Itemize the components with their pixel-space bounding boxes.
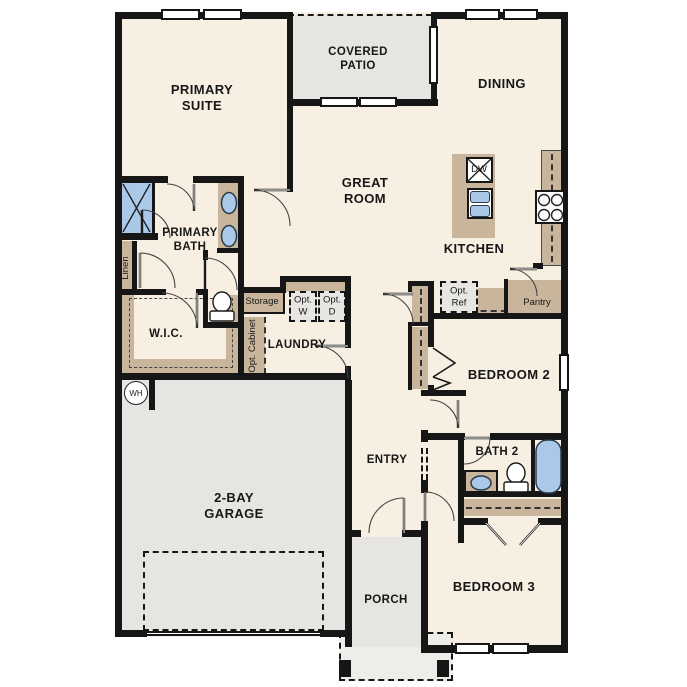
- wall: [421, 480, 428, 493]
- wall: [193, 176, 240, 183]
- fixture-label-storage: Storage: [245, 296, 278, 308]
- window: [203, 9, 242, 20]
- fixture-label-opt-cabinet: Opt. Cabinet: [247, 319, 259, 372]
- wall: [490, 433, 568, 440]
- wall: [280, 276, 286, 293]
- patio-roof-dash: [288, 14, 432, 16]
- stoop-post: [339, 660, 351, 677]
- window: [161, 9, 200, 20]
- wall: [421, 390, 466, 396]
- wall: [115, 630, 147, 637]
- closet-dash: [420, 289, 422, 322]
- cased-opening: [421, 448, 428, 480]
- fixture-label-opt-washer: Opt. W: [290, 294, 316, 317]
- window: [429, 26, 438, 84]
- wall: [538, 518, 568, 525]
- sink-bowl: [470, 205, 490, 217]
- wall: [115, 12, 122, 637]
- window: [455, 643, 490, 654]
- wall: [345, 533, 352, 647]
- wall: [287, 12, 293, 192]
- window: [492, 643, 529, 654]
- room-label-primary-bath: PRIMARY BATH: [150, 226, 230, 254]
- room-label-bedroom-2: BEDROOM 2: [468, 367, 550, 383]
- patio-slider: [320, 97, 358, 107]
- wall: [115, 289, 166, 295]
- room-label-bath-2: BATH 2: [474, 445, 520, 459]
- stoop-post: [437, 660, 449, 677]
- room-label-porch: PORCH: [364, 593, 408, 607]
- room-label-kitchen: KITCHEN: [444, 241, 505, 257]
- opt-cabinet-dash: [264, 317, 266, 374]
- wall: [504, 279, 508, 314]
- wall: [345, 276, 351, 348]
- wall: [531, 436, 535, 497]
- wall: [203, 322, 244, 328]
- wall: [421, 521, 428, 652]
- wall: [132, 241, 137, 294]
- water-heater-circle: WH: [124, 381, 148, 405]
- patio-slider: [359, 97, 397, 107]
- wall: [408, 281, 412, 292]
- bedroom3-closet-dash: [466, 507, 560, 509]
- room-label-bedroom-3: BEDROOM 3: [453, 579, 535, 595]
- room-label-laundry: LAUNDRY: [268, 338, 327, 352]
- fixture-label-pantry: Pantry: [523, 297, 550, 309]
- wall: [432, 313, 568, 319]
- sink-bowl: [470, 191, 490, 203]
- cooktop: [535, 190, 565, 224]
- room-label-covered-patio: COVERED PATIO: [318, 45, 398, 73]
- wall: [561, 12, 568, 653]
- wall: [458, 518, 488, 525]
- wall: [533, 263, 543, 269]
- cutout: [115, 637, 345, 687]
- window: [503, 9, 538, 20]
- window: [465, 9, 500, 20]
- water-heater-label: WH: [129, 389, 142, 398]
- room-label-primary-suite: PRIMARY SUITE: [155, 82, 250, 114]
- fixture-label-dishwasher: DW: [471, 164, 487, 176]
- room-label-dining: DINING: [478, 76, 526, 92]
- room-label-garage: 2-BAY GARAGE: [187, 490, 282, 522]
- wall: [149, 379, 155, 410]
- garage-door-dash: [143, 551, 324, 631]
- wall: [410, 322, 428, 326]
- wall: [421, 430, 428, 442]
- wall: [345, 366, 351, 380]
- wall: [402, 530, 428, 537]
- closet-dash: [420, 330, 422, 386]
- wall: [458, 491, 568, 497]
- garage-door-threshold: [147, 631, 320, 636]
- fixture-label-linen: Linen: [120, 256, 132, 279]
- wall: [458, 433, 464, 543]
- wall: [115, 176, 168, 183]
- window: [559, 354, 569, 391]
- wall: [345, 530, 361, 537]
- wall: [320, 630, 348, 637]
- floor-plan: WH: [0, 0, 687, 687]
- wall: [238, 176, 244, 379]
- fixture-label-opt-dryer: Opt. D: [319, 294, 345, 317]
- room-label-wic: W.I.C.: [149, 327, 183, 341]
- room-label-great-room: GREAT ROOM: [325, 175, 405, 207]
- wall: [408, 322, 412, 390]
- room-label-entry: ENTRY: [367, 453, 408, 467]
- fixture-label-opt-ref: Opt. Ref: [445, 285, 473, 308]
- wall: [345, 380, 352, 537]
- wall: [238, 287, 286, 293]
- wall: [280, 276, 351, 282]
